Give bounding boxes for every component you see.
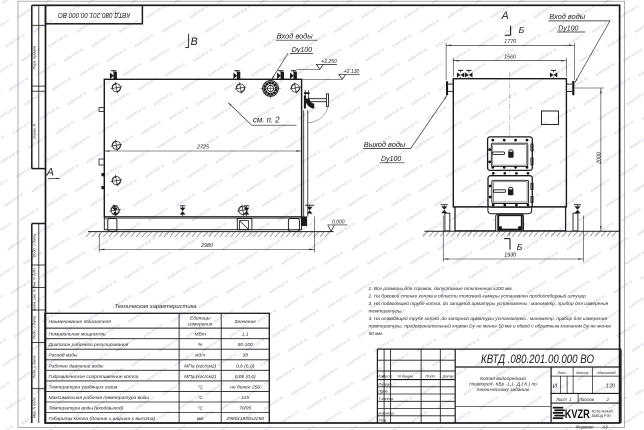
svg-text:1770: 1770 <box>504 39 516 45</box>
svg-text:Выход воды: Выход воды <box>364 140 406 149</box>
svg-text:Вход воды: Вход воды <box>277 32 313 41</box>
svg-text:KVZR: KVZR <box>565 407 590 421</box>
svg-text:Утв.: Утв. <box>378 418 387 423</box>
svg-text:В: В <box>191 36 198 48</box>
svg-text:А: А <box>501 10 509 22</box>
svg-text:0,06 (0,6): 0,06 (0,6) <box>235 374 256 380</box>
svg-text:температуры.: температуры. <box>369 309 403 314</box>
svg-text:°С: °С <box>197 384 203 390</box>
svg-text:мм: мм <box>197 417 204 422</box>
svg-text:температуры, предохранительный: температуры, предохранительный клапан Dу… <box>369 322 612 329</box>
svg-text:И: И <box>553 383 558 390</box>
svg-text:Листов: Листов <box>578 397 595 402</box>
svg-text:Т.контр.: Т.контр. <box>378 396 394 401</box>
svg-text:КВТД .080.201.00.000 ВО: КВТД .080.201.00.000 ВО <box>481 352 594 366</box>
svg-text:2980: 2980 <box>200 243 213 249</box>
svg-text:Инв. N дубл.: Инв. N дубл. <box>33 267 37 288</box>
svg-text:3. На подводящей трубе котла,: 3. На подводящей трубе котла, до запорно… <box>369 300 609 307</box>
svg-text:КОТЕЛЬНЫЙ: КОТЕЛЬНЫЙ <box>592 410 614 414</box>
svg-text:КВТД.080.201.00.000 ВО: КВТД.080.201.00.000 ВО <box>58 11 130 20</box>
svg-text:Лист: Лист <box>381 374 393 379</box>
svg-text:%: % <box>198 342 203 348</box>
svg-text:2000: 2000 <box>597 152 603 165</box>
svg-text:Разраб.: Разраб. <box>378 381 392 386</box>
svg-text:38: 38 <box>242 353 248 359</box>
svg-text:1930: 1930 <box>504 253 516 259</box>
svg-text:техническому заданию: техническому заданию <box>477 387 530 393</box>
svg-text:70/95: 70/95 <box>239 405 252 411</box>
svg-text:Взам. инв. N: Взам. инв. N <box>33 289 37 311</box>
svg-text:Габариты котла (длинна х ширин: Габариты котла (длинна х ширина х высота… <box>49 416 156 422</box>
svg-text:Подп. и дата: Подп. и дата <box>33 316 37 339</box>
svg-text:А: А <box>46 167 54 179</box>
svg-text:Дата: Дата <box>442 374 454 379</box>
svg-text:Пров.: Пров. <box>378 389 388 394</box>
svg-text:Справ. N: Справ. N <box>33 123 37 139</box>
svg-text:4. На отводящей трубе котла ,: 4. На отводящей трубе котла ,до запорной… <box>369 315 608 322</box>
svg-text:Dy100: Dy100 <box>292 47 312 54</box>
svg-text:Масштаб: Масштаб <box>597 370 616 375</box>
svg-text:Температура воды (вход/выход): Температура воды (вход/выход) <box>49 405 124 411</box>
svg-text:N докум.: N докум. <box>398 374 414 379</box>
svg-text:МВт: МВт <box>194 332 205 338</box>
svg-text:Номинальная мощность: Номинальная мощность <box>49 332 107 338</box>
svg-text:Перв. примен.: Перв. примен. <box>33 45 37 70</box>
svg-text:м3/ч: м3/ч <box>195 353 205 359</box>
svg-text:1:20: 1:20 <box>606 383 615 389</box>
svg-text:Формат: Формат <box>576 425 594 430</box>
svg-text:не более 250: не более 250 <box>230 384 260 390</box>
svg-text:50-100: 50-100 <box>238 342 254 348</box>
svg-text:МПа (кгс/см2): МПа (кгс/см2) <box>184 374 216 380</box>
svg-text:Heatexpert- КВр -1,1- Д ( К ): Heatexpert- КВр -1,1- Д ( К ) по <box>469 382 537 388</box>
svg-text:50 мм.: 50 мм. <box>369 331 384 337</box>
svg-text:2725: 2725 <box>196 145 210 151</box>
svg-text:Н.контр.: Н.контр. <box>378 410 394 415</box>
svg-text:2980х1930х2250: 2980х1930х2250 <box>225 416 264 422</box>
svg-text:Вход воды: Вход воды <box>549 12 585 21</box>
svg-text:2. На боковой стенке котла в: 2. На боковой стенке котла в области топ… <box>368 292 587 299</box>
svg-text:Б: Б <box>517 242 523 252</box>
svg-text:Подп. и дата: Подп. и дата <box>33 234 37 257</box>
svg-text:Температура уходящих газов: Температура уходящих газов <box>49 384 118 390</box>
svg-text:Наименование показателя: Наименование показателя <box>49 319 112 325</box>
svg-text:Инв. N подл.: Инв. N подл. <box>33 397 37 419</box>
svg-text:Котел водогрейный: Котел водогрейный <box>480 375 526 382</box>
svg-text:Гидравлическое сопротивление к: Гидравлическое сопротивление котла <box>49 374 139 380</box>
svg-text:1. Все размеры для справок, д: 1. Все размеры для справок, допустимые о… <box>369 286 513 292</box>
svg-text:МПа (кгс/см2): МПа (кгс/см2) <box>184 363 216 369</box>
svg-text:Лист: Лист <box>555 397 567 402</box>
svg-text:Dy100: Dy100 <box>558 25 578 32</box>
svg-text:Масса: Масса <box>576 370 588 375</box>
svg-text:1,1: 1,1 <box>242 332 249 338</box>
svg-text:Максимальная рабочая температу: Максимальная рабочая температура воды <box>49 395 150 401</box>
svg-text:измерения: измерения <box>188 323 213 328</box>
svg-text:Единицы: Единицы <box>190 316 211 322</box>
svg-text:Техническая характеристика: Техническая характеристика <box>114 304 197 310</box>
svg-text:Диапазон рабочего регулировани: Диапазон рабочего регулирования <box>48 342 129 348</box>
svg-text:115: 115 <box>241 395 249 401</box>
svg-text:Б: Б <box>519 25 525 35</box>
svg-text:А3: А3 <box>601 425 608 430</box>
svg-text:+2.250: +2.250 <box>321 59 337 65</box>
svg-text:Подп. и дата: Подп. и дата <box>33 356 37 379</box>
svg-text:+2.130: +2.130 <box>344 69 360 75</box>
svg-text:Значение: Значение <box>234 319 256 325</box>
svg-text:ЗАВОД РЭП: ЗАВОД РЭП <box>592 414 612 418</box>
svg-text:°С: °С <box>197 395 203 401</box>
svg-text:Dy100: Dy100 <box>381 156 401 163</box>
svg-text:см. п. 2: см. п. 2 <box>253 116 280 125</box>
svg-text:Расход воды: Расход воды <box>49 353 78 359</box>
svg-text:Подп.: Подп. <box>426 374 436 379</box>
svg-text:1: 1 <box>569 397 571 402</box>
svg-text:0,6 (6,0): 0,6 (6,0) <box>236 363 255 369</box>
svg-text:1560: 1560 <box>504 54 516 60</box>
svg-text:°С: °С <box>197 405 203 411</box>
svg-text:Лит.: Лит. <box>556 370 566 375</box>
svg-text:Рабочее давление воды: Рабочее давление воды <box>49 363 104 369</box>
